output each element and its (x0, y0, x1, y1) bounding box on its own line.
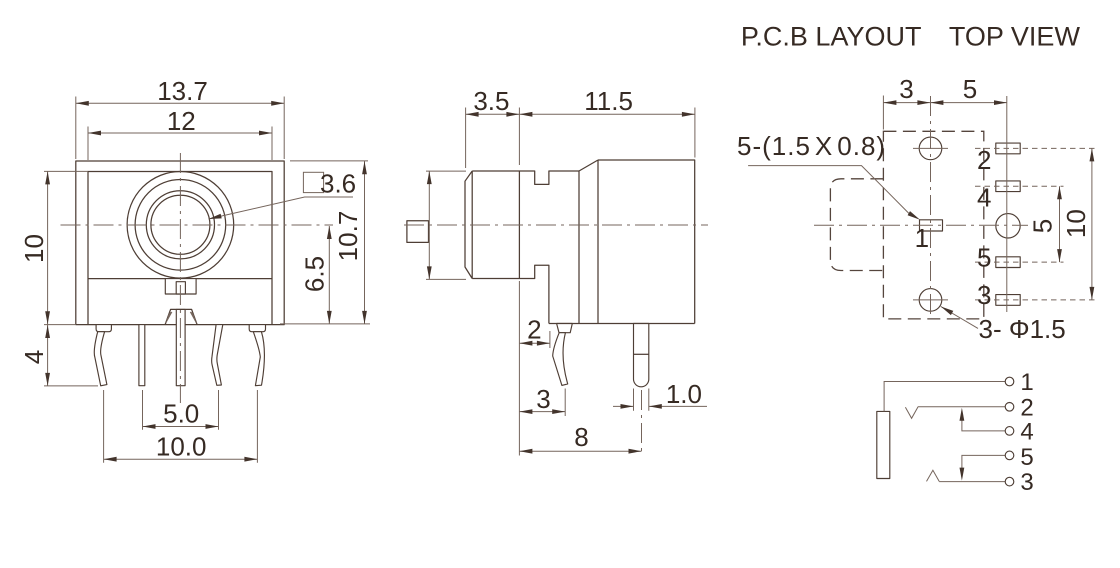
svg-text:8: 8 (574, 422, 588, 452)
svg-text:3: 3 (536, 384, 550, 414)
svg-text:3.5: 3.5 (473, 86, 509, 116)
svg-text:10: 10 (1061, 209, 1091, 238)
svg-text:TOP VIEW: TOP VIEW (949, 22, 1081, 52)
svg-text:3: 3 (1020, 469, 1033, 496)
svg-text:P.C.B LAYOUT: P.C.B LAYOUT (741, 22, 922, 52)
svg-text:5: 5 (1028, 219, 1058, 233)
svg-text:5: 5 (977, 242, 991, 272)
svg-text:12: 12 (167, 106, 196, 136)
svg-text:3.6: 3.6 (320, 169, 356, 199)
svg-text:4: 4 (1020, 419, 1033, 446)
svg-text:10.0: 10.0 (156, 432, 207, 462)
svg-text:6.5: 6.5 (300, 256, 330, 292)
svg-text:2: 2 (1020, 394, 1033, 421)
svg-text:1: 1 (915, 223, 929, 253)
svg-text:1.0: 1.0 (666, 379, 702, 409)
svg-text:1: 1 (1020, 369, 1033, 396)
svg-text:3- Φ1.5: 3- Φ1.5 (979, 314, 1066, 344)
svg-text:13.7: 13.7 (157, 76, 208, 106)
svg-text:5: 5 (1020, 444, 1033, 471)
svg-text:10.7: 10.7 (333, 211, 363, 262)
svg-text:4: 4 (977, 182, 991, 212)
svg-text:5.0: 5.0 (163, 399, 199, 429)
svg-text:5: 5 (963, 74, 977, 104)
svg-text:2: 2 (977, 145, 991, 175)
svg-text:2: 2 (527, 315, 541, 345)
svg-text:11.5: 11.5 (584, 86, 633, 116)
svg-text:10: 10 (19, 234, 49, 263)
svg-text:5-(1.5X0.8): 5-(1.5X0.8) (737, 131, 886, 161)
svg-text:3: 3 (899, 74, 913, 104)
svg-text:3: 3 (977, 280, 991, 310)
svg-text:4: 4 (19, 350, 49, 364)
